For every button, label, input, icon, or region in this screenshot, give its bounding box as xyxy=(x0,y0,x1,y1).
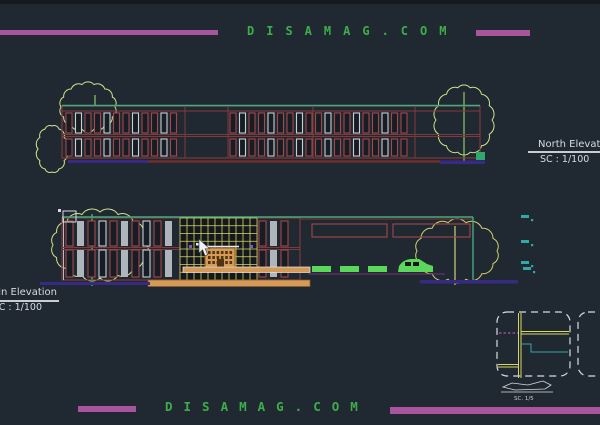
watermark-bar-bottom-left xyxy=(78,406,136,412)
north-title-underline xyxy=(528,151,600,153)
main-elevation-scale-text: SC : 1/100 xyxy=(0,302,42,314)
level-marks-teal xyxy=(521,215,535,273)
main-elevation-title-text: Main Elevation xyxy=(0,287,57,299)
main-elevation-drawing xyxy=(40,209,518,287)
main-elevation-title: Main Elevation xyxy=(0,287,57,299)
detail-boxes xyxy=(497,312,600,392)
watermark-bar-bottom-right xyxy=(390,407,600,414)
main-elevation-scale: SC : 1/100 xyxy=(0,302,42,314)
north-elevation-title: North Elevation xyxy=(538,139,600,151)
cad-viewport: DISAMAG.COM SC. 1/5 North Elevation SC :… xyxy=(0,0,600,425)
detail-scale-label: SC. 1/5 xyxy=(514,396,534,402)
north-elevation-drawing xyxy=(36,82,494,173)
watermark-text-bottom: DISAMAG.COM xyxy=(165,399,369,414)
north-elevation-scale: SC : 1/100 xyxy=(540,154,589,166)
cad-drawing: SC. 1/5 xyxy=(0,0,600,425)
